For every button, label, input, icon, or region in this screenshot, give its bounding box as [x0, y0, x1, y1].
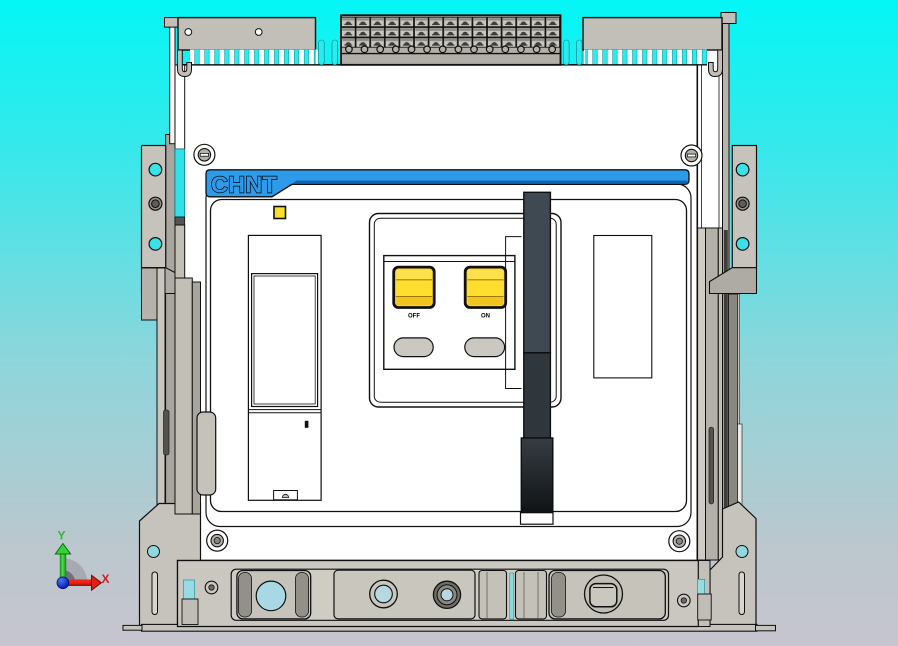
svg-text:CHNT: CHNT — [211, 172, 278, 198]
svg-text:ON: ON — [481, 313, 490, 319]
svg-text:OFF: OFF — [408, 313, 420, 319]
svg-text:X: X — [102, 572, 110, 586]
svg-text:Y: Y — [58, 529, 66, 543]
